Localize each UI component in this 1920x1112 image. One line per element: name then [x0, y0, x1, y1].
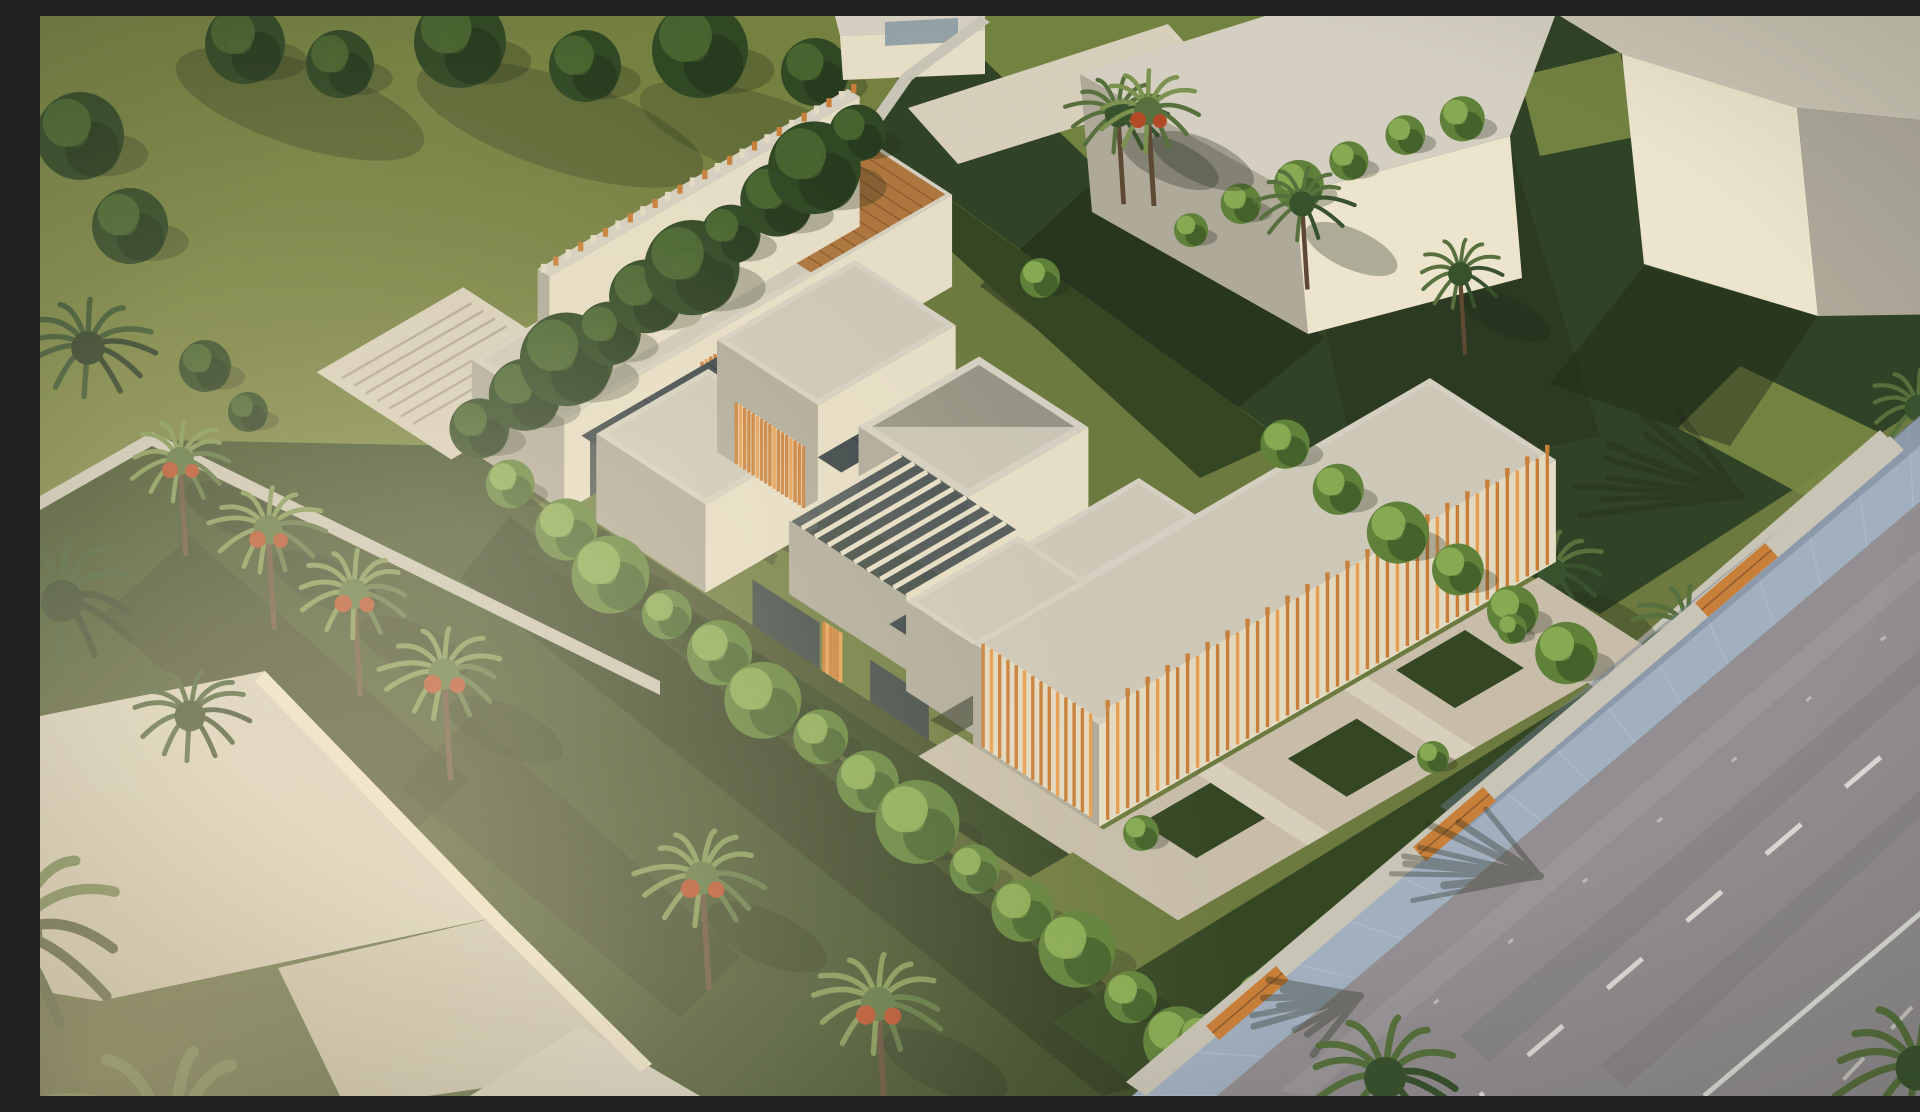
render-canvas — [40, 16, 1920, 1096]
film-grain — [40, 16, 1920, 1096]
light-effects — [40, 16, 1920, 1096]
architectural-render: Aerial 3D architectural rendering of a m… — [40, 16, 1920, 1096]
